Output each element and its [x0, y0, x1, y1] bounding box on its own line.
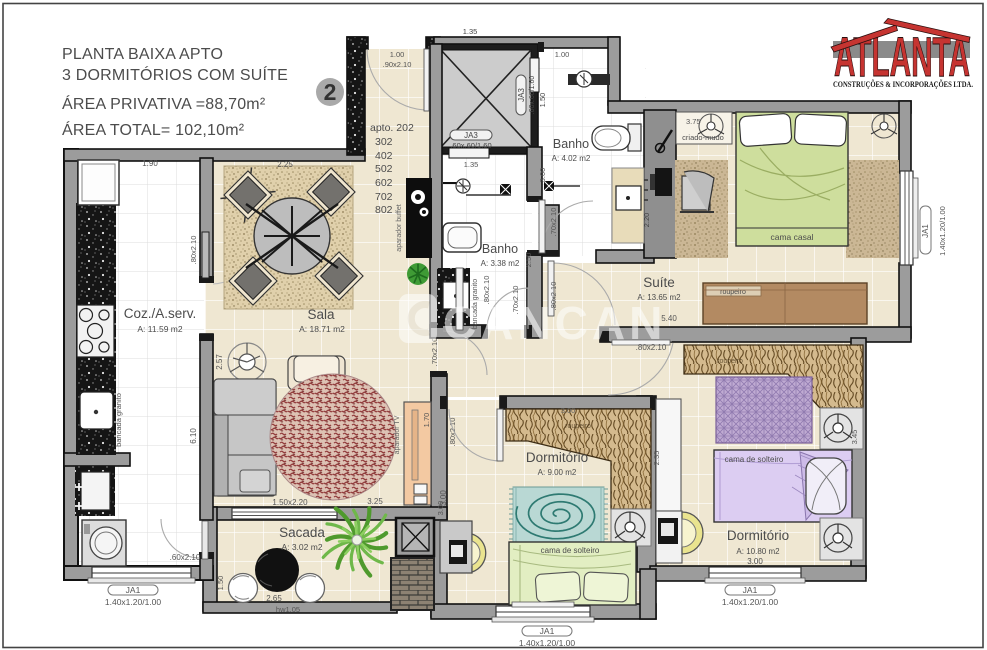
svg-text:.60x2.10: .60x2.10: [170, 553, 201, 562]
svg-text:Sala: Sala: [307, 307, 335, 322]
svg-text:3.25: 3.25: [367, 497, 383, 506]
svg-text:A: 3.38 m2: A: 3.38 m2: [481, 259, 520, 268]
svg-text:Coz./A.serv.: Coz./A.serv.: [124, 306, 197, 321]
svg-text:2: 2: [324, 79, 337, 105]
svg-text:apto. 202: apto. 202: [370, 122, 414, 134]
svg-text:cama de solteiro: cama de solteiro: [541, 546, 600, 555]
svg-text:1.70: 1.70: [422, 413, 431, 428]
svg-text:A: 10.80 m2: A: 10.80 m2: [736, 547, 780, 556]
svg-text:3.45: 3.45: [850, 430, 859, 445]
svg-text:hw1.05: hw1.05: [276, 605, 300, 614]
svg-text:JA3: JA3: [464, 131, 478, 140]
svg-text:1.40x1.20/1.00: 1.40x1.20/1.00: [519, 638, 576, 648]
svg-text:roupeiro: roupeiro: [717, 358, 743, 365]
svg-text:1.00: 1.00: [390, 50, 405, 59]
svg-text:JA1: JA1: [126, 585, 141, 595]
svg-text:3.00: 3.00: [561, 406, 576, 415]
svg-text:Dormitório: Dormitório: [526, 450, 588, 465]
svg-text:5.40: 5.40: [661, 314, 677, 323]
svg-text:1.35: 1.35: [463, 27, 478, 36]
svg-text:1.40x1.20/1.00: 1.40x1.20/1.00: [105, 597, 162, 607]
svg-text:1.40x1.20/1.00: 1.40x1.20/1.00: [938, 206, 947, 256]
svg-text:JA1: JA1: [921, 224, 930, 238]
svg-text:ÁREA TOTAL= 102,10m²: ÁREA TOTAL= 102,10m²: [62, 120, 245, 139]
svg-text:.90x2.10: .90x2.10: [383, 60, 412, 69]
svg-text:3.00: 3.00: [747, 557, 763, 566]
svg-text:Banho: Banho: [482, 242, 518, 256]
svg-text:.80x2.10: .80x2.10: [636, 343, 667, 352]
svg-text:CONSTRUÇÕES & INCORPORAÇÕES LT: CONSTRUÇÕES & INCORPORAÇÕES LTDA.: [833, 79, 973, 89]
svg-text:Dormitório: Dormitório: [727, 528, 789, 543]
svg-text:Banho: Banho: [553, 137, 589, 151]
svg-text:702: 702: [375, 191, 393, 203]
svg-text:A: 11.59 m2: A: 11.59 m2: [137, 324, 182, 334]
svg-text:.70x2.10: .70x2.10: [549, 208, 558, 237]
svg-text:602: 602: [375, 177, 393, 189]
svg-text:2.65: 2.65: [266, 594, 282, 603]
svg-text:A: 13.65 m2: A: 13.65 m2: [637, 293, 681, 302]
svg-text:2.57: 2.57: [215, 354, 224, 370]
svg-text:A: 9.00 m2: A: 9.00 m2: [538, 468, 577, 477]
svg-text:6.10: 6.10: [189, 428, 198, 444]
svg-text:3.75: 3.75: [686, 117, 701, 126]
svg-text:1.50x2.20: 1.50x2.20: [272, 498, 308, 507]
svg-text:402: 402: [375, 150, 393, 162]
svg-text:1.90: 1.90: [142, 159, 158, 168]
svg-text:A: 4.02 m2: A: 4.02 m2: [552, 154, 591, 163]
svg-text:aparador buffet: aparador buffet: [396, 204, 403, 251]
svg-text:3.00: 3.00: [436, 501, 445, 516]
svg-text:3 DORMITÓRIOS COM SUÍTE: 3 DORMITÓRIOS COM SUÍTE: [62, 65, 288, 84]
svg-text:cama de solteiro: cama de solteiro: [725, 455, 784, 464]
svg-text:2.25: 2.25: [277, 160, 293, 169]
svg-text:roupeiro: roupeiro: [565, 423, 591, 430]
svg-text:.80x2.10: .80x2.10: [189, 236, 198, 265]
svg-text:2.20: 2.20: [642, 213, 651, 228]
svg-text:3.00: 3.00: [538, 168, 547, 183]
svg-text:JA1: JA1: [743, 585, 758, 595]
svg-text:.80x2.10: .80x2.10: [448, 418, 457, 447]
svg-text:cama casal: cama casal: [771, 232, 814, 242]
svg-text:ÁREA PRIVATIVA =88,70m²: ÁREA PRIVATIVA =88,70m²: [62, 94, 266, 113]
svg-text:.60x.60/1.60: .60x.60/1.60: [450, 141, 491, 150]
svg-text:1.50: 1.50: [216, 576, 225, 591]
svg-text:502: 502: [375, 163, 393, 175]
svg-text:A: 18.71 m2: A: 18.71 m2: [299, 324, 345, 334]
svg-text:1.50: 1.50: [538, 93, 547, 108]
svg-text:1.00: 1.00: [555, 50, 570, 59]
svg-text:.60x.60/1.60: .60x.60/1.60: [529, 76, 536, 115]
svg-text:1.35: 1.35: [464, 160, 479, 169]
svg-text:JA3: JA3: [517, 88, 526, 102]
svg-text:Sacada: Sacada: [279, 525, 325, 540]
svg-text:A: 3.02 m2: A: 3.02 m2: [281, 542, 322, 552]
svg-text:802: 802: [375, 204, 393, 216]
svg-text:PLANTA BAIXA APTO: PLANTA BAIXA APTO: [62, 46, 223, 63]
svg-text:Suíte: Suíte: [643, 275, 675, 290]
svg-text:1.40x1.20/1.00: 1.40x1.20/1.00: [722, 597, 779, 607]
svg-text:bancada granito: bancada granito: [114, 393, 123, 447]
svg-text:302: 302: [375, 136, 393, 148]
svg-text:JA1: JA1: [540, 626, 555, 636]
svg-text:aparador TV: aparador TV: [394, 415, 401, 454]
svg-text:2.35: 2.35: [652, 451, 661, 466]
svg-text:2.50: 2.50: [524, 253, 533, 268]
